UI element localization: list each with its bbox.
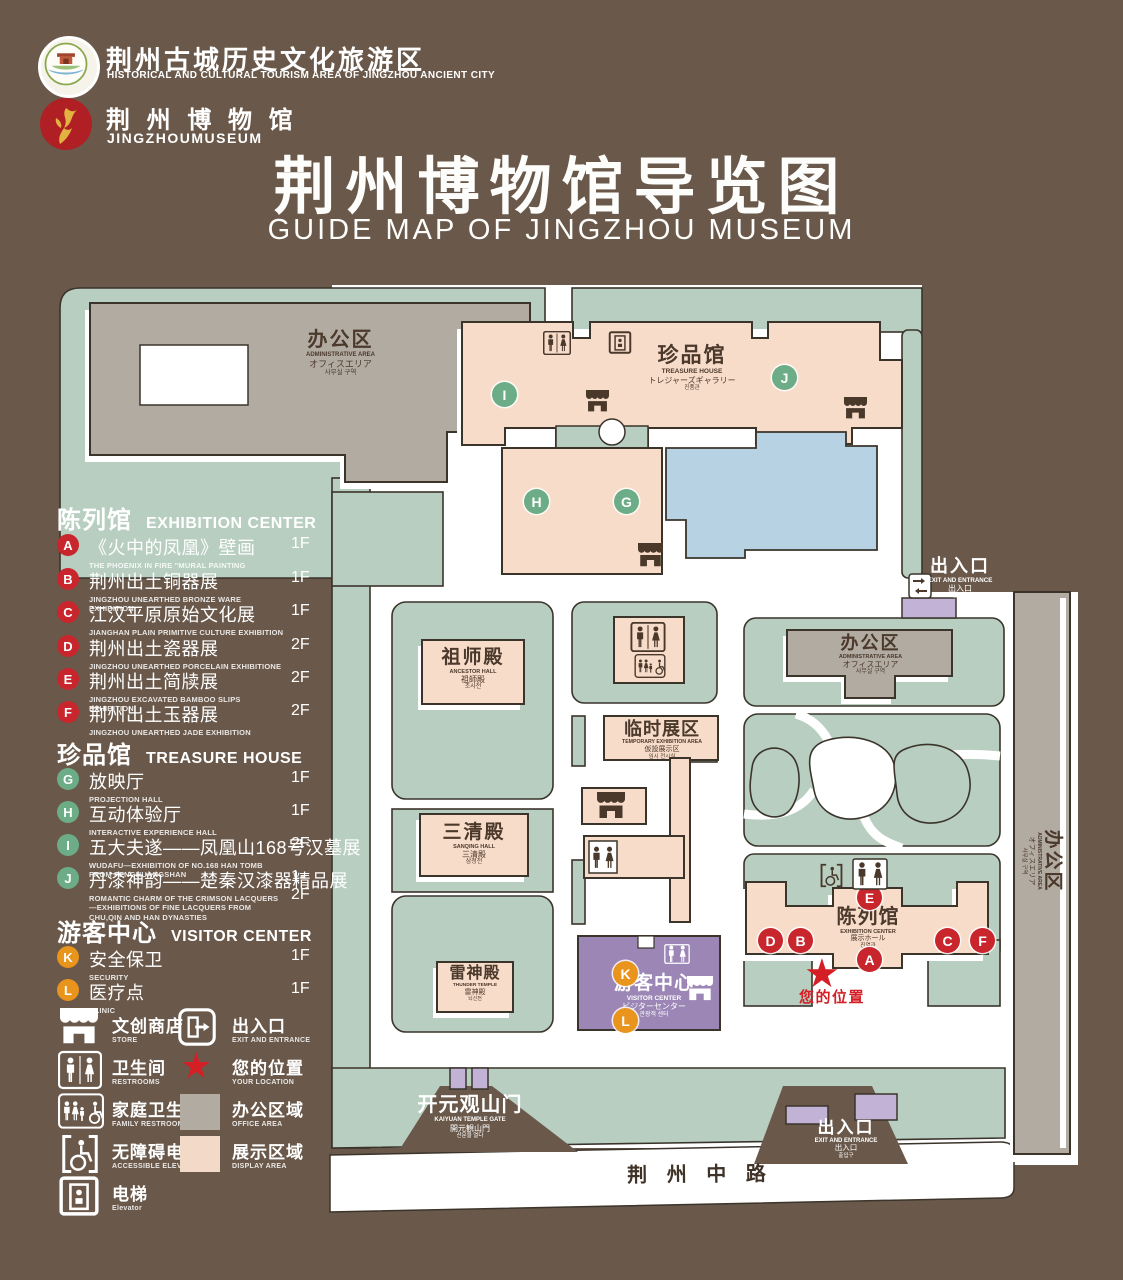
item-floor: 2F: [291, 636, 310, 654]
item-title: 丹漆神韵——楚秦汉漆器精品展: [89, 867, 319, 893]
item-title: 医疗点: [89, 979, 319, 1005]
symbol-exit: 出入口 EXIT AND ENTRANCE: [232, 1012, 310, 1044]
label-ja: トレジャーズギャラリー: [622, 376, 762, 385]
marker-badge-H: H: [57, 801, 79, 823]
label-zh: 开元观山门: [410, 1094, 530, 1117]
label-ja: オフィスエリア: [1027, 776, 1035, 946]
item-floor: 1F: [291, 769, 310, 787]
label-ancestor-hall: 祖师殿 ANCESTOR HALL 祖師殿 조사전: [422, 647, 524, 691]
label-ko: 사무실 구역: [798, 669, 943, 676]
item-floor: 1F: [291, 535, 310, 553]
item-floor: 1F: [291, 602, 310, 620]
section-title-zh: 游客中心: [57, 913, 157, 948]
symbol-restrooms: 卫生间 RESTROOMS: [112, 1054, 166, 1086]
label-zh: 出入口: [908, 556, 1012, 577]
symbol-label-en: DISPLAY AREA: [232, 1163, 304, 1170]
your-location-icon: ★: [180, 1048, 212, 1084]
label-temporary-exhibition: 临时展区 TEMPORARY EXHIBITION AREA 仮設展示区 임시 …: [602, 719, 722, 760]
item-floor: 2F: [291, 835, 310, 853]
label-exit-northeast: 出入口 EXIT AND ENTRANCE 出入口 출입구: [908, 556, 1012, 599]
item-title: 安全保卫: [89, 946, 319, 972]
legend-section-exhibition-center: 陈列馆 EXHIBITION CENTER: [57, 500, 316, 535]
map-marker-B: B: [788, 928, 813, 953]
map-marker-I: I: [492, 382, 517, 407]
label-zh: 临时展区: [602, 719, 722, 740]
store-icon: [58, 1008, 100, 1046]
label-ja: 祖師殿: [422, 675, 524, 684]
symbol-store: 文创商店 STORE: [112, 1012, 184, 1044]
label-ko: 뇌신전: [437, 997, 513, 1003]
label-ja: 開元観山門: [410, 1124, 530, 1133]
label-admin-east: 办公区 ADMINISTRATIVE AREA オフィスエリア 사무실 구역: [1021, 776, 1063, 946]
restroom-icon: [58, 1050, 102, 1090]
section-title-en: VISITOR CENTER: [171, 928, 312, 948]
symbol-label-en: OFFICE AREA: [232, 1121, 304, 1128]
map-marker-C: C: [935, 928, 960, 953]
your-location-label: 您的位置: [790, 986, 874, 1007]
store-icon: [686, 976, 714, 1002]
section-title-zh: 陈列馆: [57, 500, 132, 535]
symbol-label-zh: 出入口: [232, 1012, 310, 1037]
symbol-your-location: 您的位置 YOUR LOCATION: [232, 1054, 304, 1086]
marker-badge-J: J: [57, 867, 79, 889]
exit-entrance-icon: [178, 1008, 216, 1046]
elevator-icon: [608, 331, 632, 354]
map-marker-F: F: [970, 928, 995, 953]
label-ko: 임시 전시실: [602, 754, 722, 760]
label-en: TREASURE HOUSE: [622, 368, 762, 375]
item-floor: 1F: [291, 980, 310, 998]
section-title-zh: 珍品馆: [57, 735, 132, 770]
marker-badge-F: F: [57, 701, 79, 723]
label-ko: 산문을 열다: [410, 1133, 530, 1139]
label-exit-south: 出入口 EXIT AND ENTRANCE 出入口 출입구: [796, 1118, 896, 1159]
legend-item-F: F 荆州出土玉器展 JINGZHOU UNEARTHED JADE EXHIBI…: [57, 701, 319, 737]
map-marker-H: H: [524, 489, 549, 514]
item-title: 荆州出土瓷器展: [89, 635, 319, 661]
legend-section-treasure-house: 珍品馆 TREASURE HOUSE: [57, 735, 302, 770]
label-ko: 출입구: [796, 1153, 896, 1159]
item-title: 互动体验厅: [89, 801, 319, 827]
marker-badge-C: C: [57, 601, 79, 623]
item-floor: 1F: [291, 947, 310, 965]
section-title-en: TREASURE HOUSE: [146, 750, 302, 770]
store-icon: [843, 397, 868, 420]
map-marker-G: G: [614, 489, 639, 514]
symbol-office-area: 办公区域 OFFICE AREA: [232, 1096, 304, 1128]
label-treasure-house: 珍品馆 TREASURE HOUSE トレジャーズギャラリー 진품관: [622, 344, 762, 391]
tourism-area-subtitle: HISTORICAL AND CULTURAL TOURISM AREA OF …: [107, 70, 495, 81]
label-ja: オフィスエリア: [258, 359, 423, 369]
label-zh: 办公区: [258, 329, 423, 352]
symbol-label-en: EXIT AND ENTRANCE: [232, 1037, 310, 1044]
item-floor: 2F: [291, 702, 310, 720]
label-admin-mid: 办公区 ADMINISTRATIVE AREA オフィスエリア 사무실 구역: [798, 633, 943, 676]
label-ja: ビジターセンター: [600, 1002, 708, 1011]
section-title-en: EXHIBITION CENTER: [146, 515, 316, 535]
symbol-elevator: 电梯 Elevator: [112, 1180, 148, 1212]
office-area-swatch: [180, 1094, 220, 1130]
family-restroom-icon: [630, 654, 670, 678]
label-zh: 祖师殿: [422, 647, 524, 669]
label-en: ADMINISTRATIVE AREA: [1035, 776, 1041, 946]
marker-badge-L: L: [57, 979, 79, 1001]
map-marker-D: D: [758, 928, 783, 953]
treasure-pond: [666, 432, 877, 558]
item-floor: 1-2F: [291, 868, 319, 904]
item-title: 放映厅: [89, 768, 319, 794]
store-icon: [585, 390, 610, 413]
map-marker-J: J: [772, 365, 797, 390]
symbol-label-zh: 卫生间: [112, 1054, 166, 1079]
label-zh: 雷神殿: [437, 965, 513, 983]
marker-badge-K: K: [57, 946, 79, 968]
label-ko: 사무실 구역: [1021, 776, 1027, 946]
restroom-icon: [852, 858, 888, 890]
accessible-elevator-icon: [820, 862, 843, 889]
tourism-area-logo: [38, 36, 100, 98]
item-title: 荆州出土玉器展: [89, 701, 319, 727]
legend-item-K: K 安全保卫 SECURITY 1F: [57, 946, 319, 982]
symbol-label-zh: 办公区域: [232, 1096, 304, 1121]
family-restroom-icon: [58, 1092, 104, 1130]
label-zh: 三清殿: [420, 822, 528, 844]
display-area-swatch: [180, 1136, 220, 1172]
label-sanqing-hall: 三清殿 SANQING HALL 三清殿 삼청전: [420, 822, 528, 866]
restroom-icon: [664, 944, 690, 964]
symbol-label-en: STORE: [112, 1037, 184, 1044]
symbol-label-en: YOUR LOCATION: [232, 1079, 304, 1086]
marker-badge-I: I: [57, 834, 79, 856]
store-icon: [637, 543, 664, 568]
label-thunder-temple: 雷神殿 THUNDER TEMPLE 雷神殿 뇌신전: [437, 965, 513, 1003]
label-admin-nw: 办公区 ADMINISTRATIVE AREA オフィスエリア 사무실 구역: [258, 329, 423, 377]
label-ko: 출입구: [908, 593, 1012, 599]
label-ko: 삼청전: [420, 859, 528, 866]
legend-item-D: D 荆州出土瓷器展 JINGZHOU UNEARTHED PORCELAIN E…: [57, 635, 319, 671]
item-title: 《火中的凤凰》壁画: [89, 534, 319, 560]
label-zh: 办公区: [798, 633, 943, 654]
symbol-display-area: 展示区域 DISPLAY AREA: [232, 1138, 304, 1170]
label-kaiyuan-gate: 开元观山门 KAIYUAN TEMPLE GATE 開元観山門 산문을 열다: [410, 1094, 530, 1139]
marker-badge-E: E: [57, 668, 79, 690]
restroom-icon: [588, 840, 618, 874]
symbol-label-zh: 您的位置: [232, 1054, 304, 1079]
map-marker-L: L: [613, 1008, 638, 1033]
item-floor: 1F: [291, 569, 310, 587]
page-title: 荆州博物馆导览图: [0, 136, 1123, 226]
label-ja: 三清殿: [420, 850, 528, 859]
restroom-icon: [628, 622, 668, 652]
elevator-icon: [58, 1176, 100, 1216]
label-en: ADMINISTRATIVE AREA: [258, 352, 423, 359]
road-name: 荆 州 中 路: [615, 1157, 785, 1188]
symbol-label-en: Elevator: [112, 1205, 148, 1212]
marker-badge-D: D: [57, 635, 79, 657]
legend-item-G: G 放映厅 PROJECTION HALL 1F: [57, 768, 319, 804]
label-zh: 珍品馆: [622, 344, 762, 368]
marker-badge-G: G: [57, 768, 79, 790]
accessible-elevator-icon: [58, 1134, 102, 1174]
label-exhibition-center: 陈列馆 EXHIBITION CENTER 展示ホール 진열관: [808, 906, 928, 950]
label-en: EXIT AND ENTRANCE: [908, 577, 1012, 584]
label-ko: 진품관: [622, 385, 762, 391]
item-floor: 2F: [291, 669, 310, 687]
label-ja: オフィスエリア: [798, 660, 943, 669]
legend-item-A: A 《火中的凤凰》壁画 THE PHOENIX IN FIRE "MURAL P…: [57, 534, 319, 570]
label-ja: 出入口: [796, 1144, 896, 1153]
symbol-label-zh: 文创商店: [112, 1012, 184, 1037]
item-title: 荆州出土简牍展: [89, 668, 319, 694]
page-subtitle: GUIDE MAP OF JINGZHOU MUSEUM: [0, 214, 1123, 247]
label-zh: 出入口: [796, 1118, 896, 1138]
label-ko: 사무실 구역: [258, 369, 423, 376]
legend-item-C: C 江汉平原原始文化展 JIANGHAN PLAIN PRIMITIVE CUL…: [57, 601, 319, 637]
symbol-label-zh: 展示区域: [232, 1138, 304, 1163]
item-title: 五大夫遂——凤凰山168号汉墓展: [89, 834, 319, 860]
restroom-icon: [543, 331, 571, 355]
item-title: 荆州出土铜器展: [89, 568, 319, 594]
item-title: 江汉平原原始文化展: [89, 601, 319, 627]
label-ja: 仮設展示区: [602, 746, 722, 754]
label-en: KAIYUAN TEMPLE GATE: [410, 1117, 530, 1124]
legend-section-visitor-center: 游客中心 VISITOR CENTER: [57, 913, 312, 948]
marker-badge-B: B: [57, 568, 79, 590]
guide-map-poster: 荆州古城历史文化旅游区 HISTORICAL AND CULTURAL TOUR…: [0, 0, 1123, 1280]
label-zh: 办公区: [1041, 776, 1063, 946]
legend-item-H: H 互动体验厅 INTERACTIVE EXPERIENCE HALL 1F: [57, 801, 319, 837]
label-ja: 出入口: [908, 584, 1012, 593]
symbol-label-zh: 电梯: [112, 1180, 148, 1205]
map-marker-A: A: [857, 947, 882, 972]
map-marker-K: K: [613, 961, 638, 986]
store-icon: [596, 792, 626, 820]
label-ko: 조사전: [422, 684, 524, 691]
symbol-label-en: RESTROOMS: [112, 1079, 166, 1086]
marker-badge-A: A: [57, 534, 79, 556]
item-floor: 1F: [291, 802, 310, 820]
